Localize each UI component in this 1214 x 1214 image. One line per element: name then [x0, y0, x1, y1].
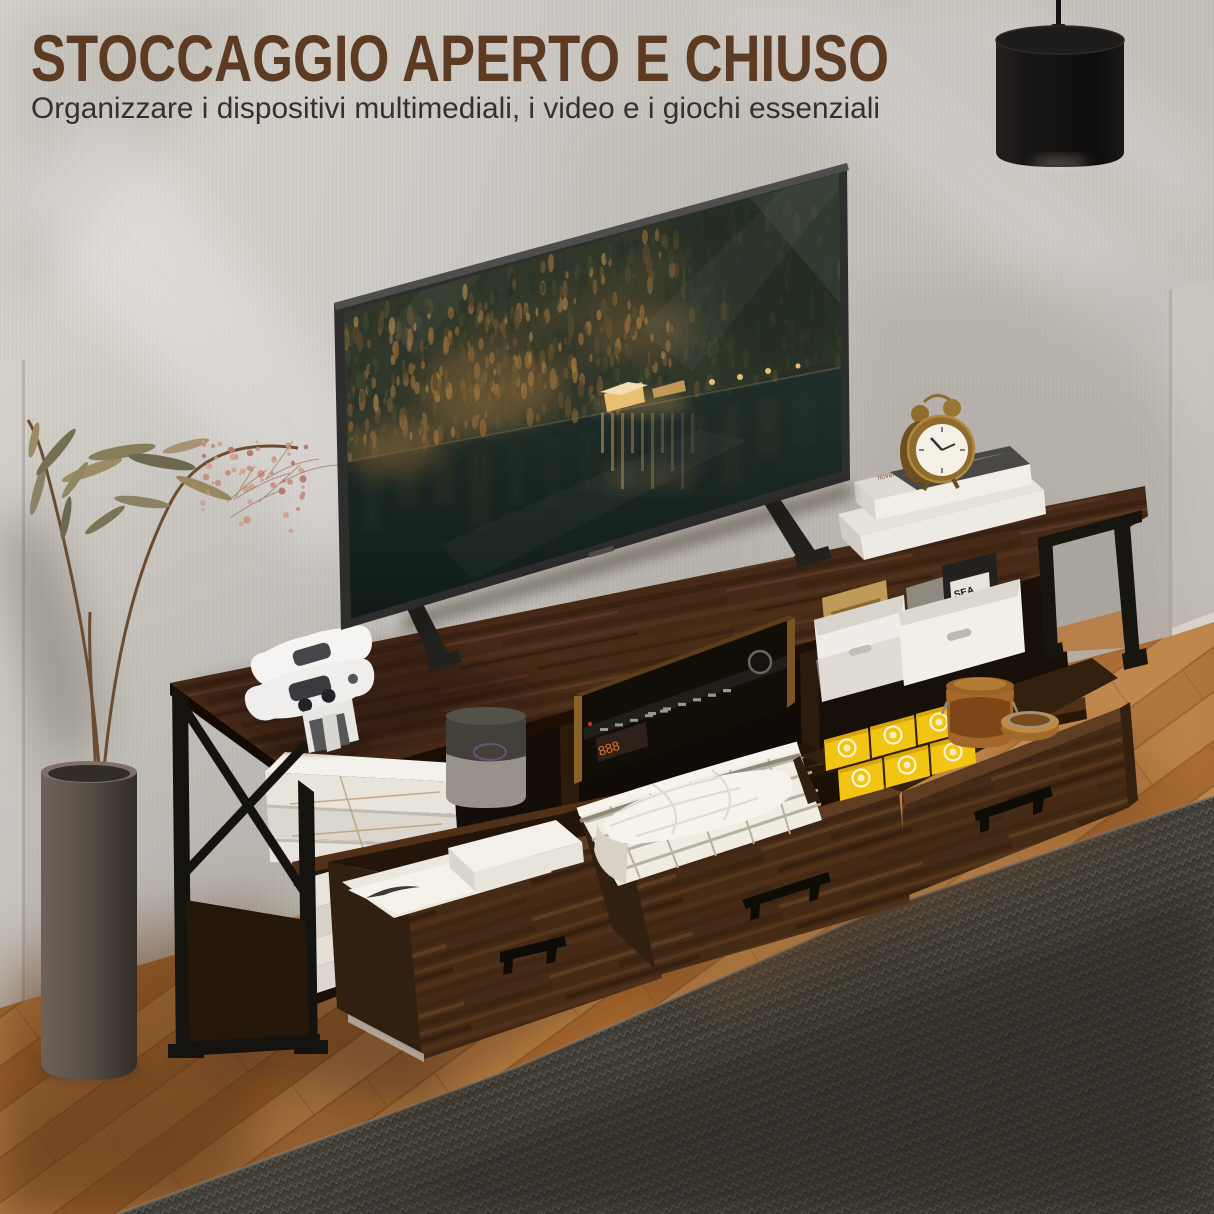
- svg-text:Organizzare i dispositivi mult: Organizzare i dispositivi multimediali, …: [31, 92, 880, 125]
- svg-text:STOCCAGGIO APERTO E CHIUSO: STOCCAGGIO APERTO E CHIUSO: [31, 21, 889, 95]
